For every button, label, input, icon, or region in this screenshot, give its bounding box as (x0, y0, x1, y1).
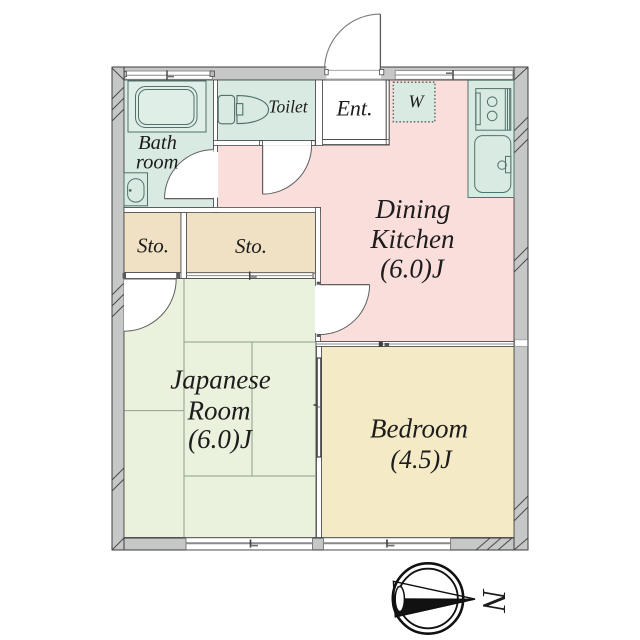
svg-text:Dining: Dining (374, 194, 450, 224)
svg-text:(4.5)J: (4.5)J (390, 445, 453, 474)
svg-text:Sto.: Sto. (235, 234, 267, 258)
svg-text:Bedroom: Bedroom (370, 414, 468, 444)
svg-text:Sto.: Sto. (137, 234, 169, 258)
svg-text:Ent.: Ent. (335, 96, 372, 121)
svg-text:Room: Room (187, 396, 251, 426)
svg-text:(6.0)J: (6.0)J (188, 424, 254, 454)
svg-text:(6.0)J: (6.0)J (380, 254, 446, 284)
svg-text:Toilet: Toilet (268, 97, 308, 117)
svg-text:Kitchen: Kitchen (370, 224, 455, 254)
svg-text:room: room (136, 152, 179, 174)
svg-text:Japanese: Japanese (170, 365, 270, 395)
svg-text:N: N (475, 588, 512, 614)
svg-text:W: W (409, 92, 426, 112)
